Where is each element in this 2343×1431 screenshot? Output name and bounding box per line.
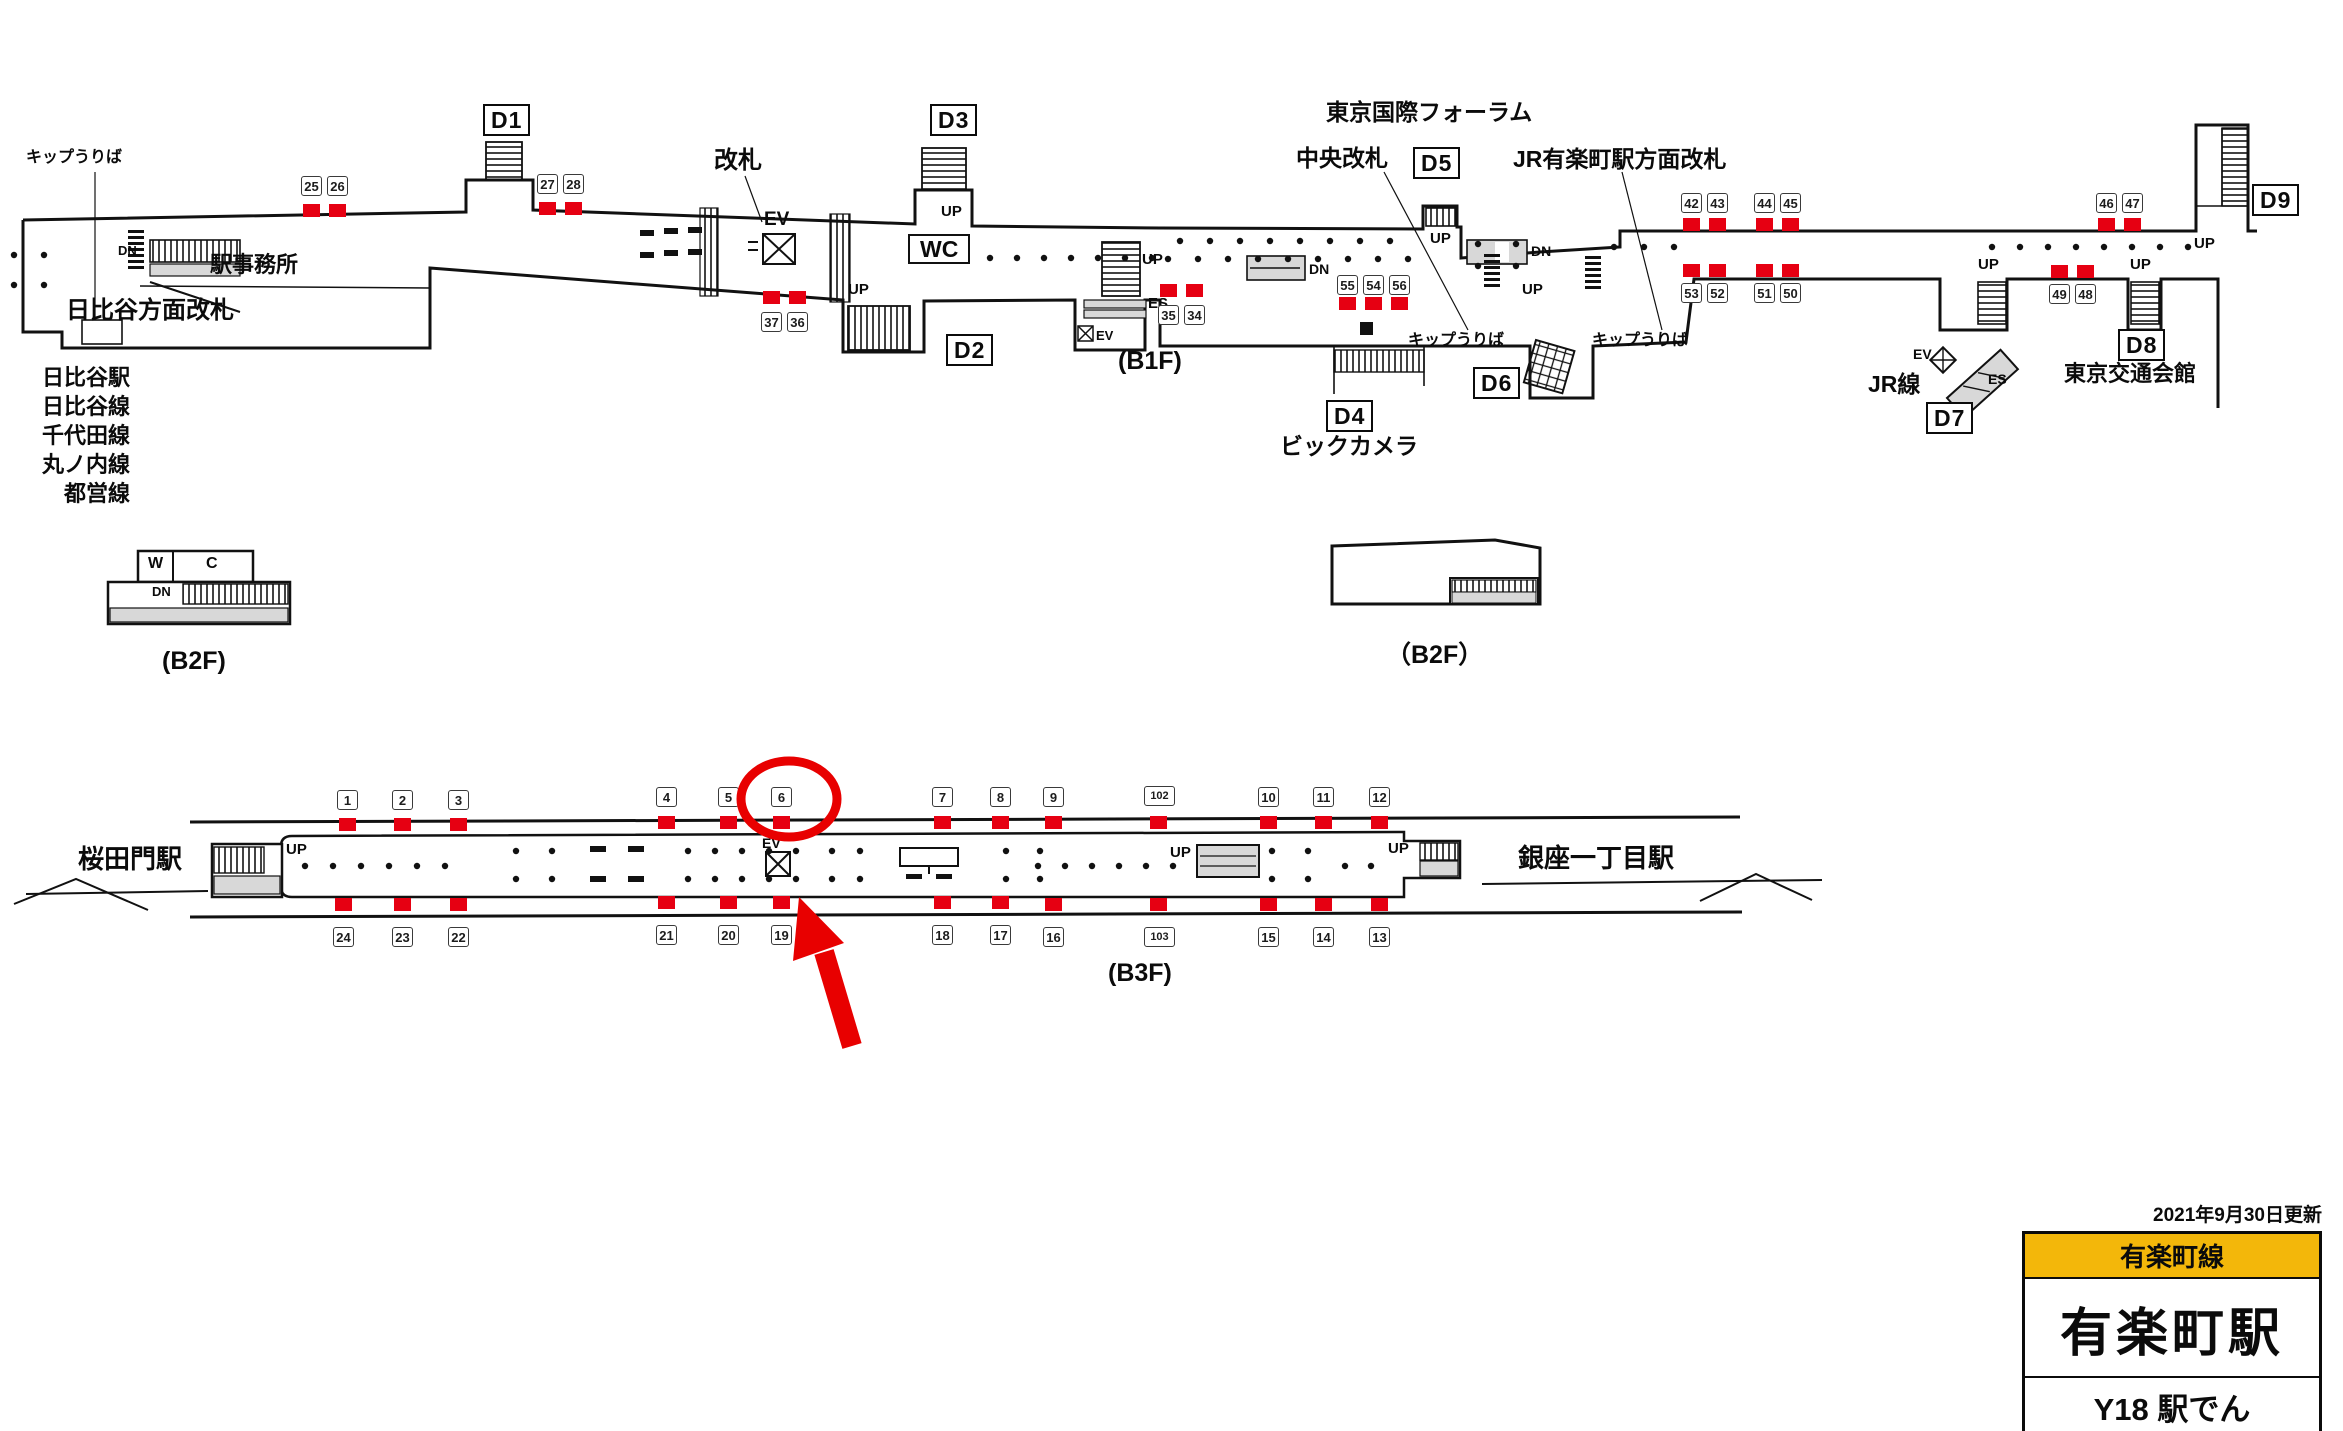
updated-date: 2021年9月30日更新 [2022,1200,2322,1227]
annotation-layer [0,0,2343,1431]
line-name: 有楽町線 [2025,1234,2319,1279]
station-info-panel: 2021年9月30日更新 有楽町線 有楽町駅 Y18 駅でん [2022,1200,2322,1431]
station-code-row: Y18 駅でん [2025,1378,2319,1431]
highlight-arrow [793,897,852,1046]
station-map: キップうりばDN駅事務所日比谷方面改札改札EVWCUPUP(B1F)UPESEV… [0,0,2343,1431]
highlight-circle [741,761,837,837]
station-info-box: 有楽町線 有楽町駅 Y18 駅でん [2022,1231,2322,1431]
station-name: 有楽町駅 [2025,1279,2319,1378]
